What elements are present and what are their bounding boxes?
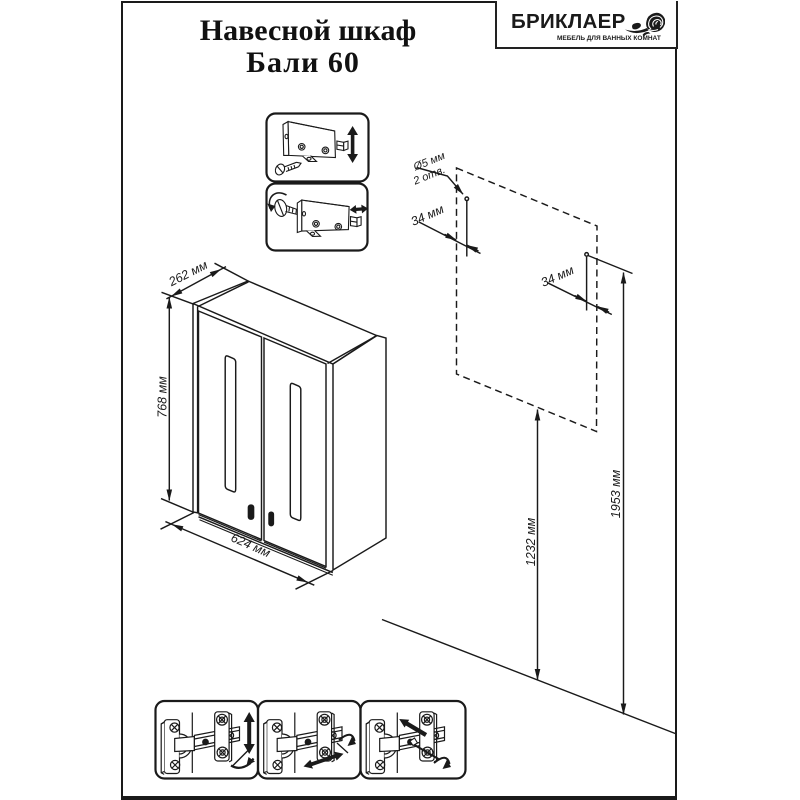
svg-text:34 мм: 34 мм	[539, 263, 577, 290]
svg-text:768 мм: 768 мм	[156, 376, 170, 418]
svg-text:262 мм: 262 мм	[166, 258, 211, 290]
svg-text:1232 мм: 1232 мм	[524, 517, 538, 566]
svg-text:34 мм: 34 мм	[409, 202, 447, 229]
svg-text:1953 мм: 1953 мм	[609, 469, 623, 518]
